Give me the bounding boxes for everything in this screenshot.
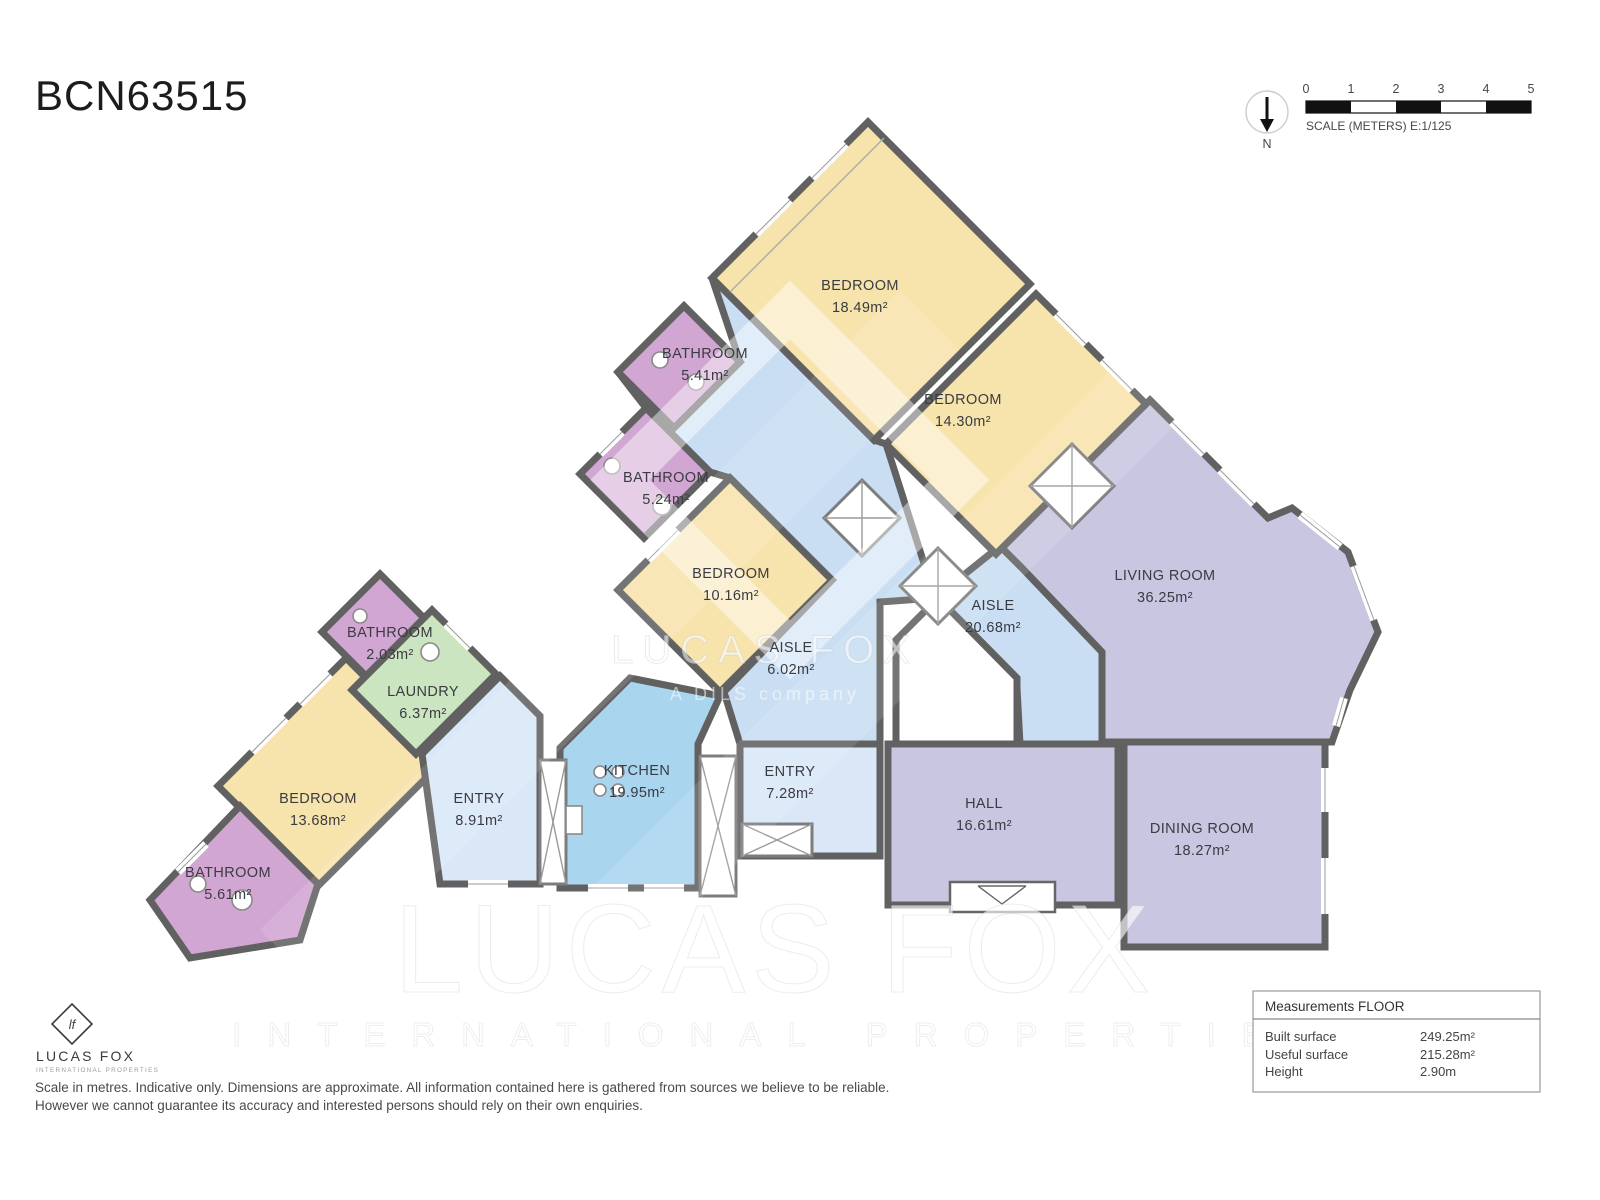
scale-segment bbox=[1396, 101, 1441, 113]
measurements-panel: Measurements FLOOR Built surface 249.25m… bbox=[1253, 991, 1540, 1092]
hob-icon bbox=[594, 784, 606, 796]
logo-name: LUCAS FOX bbox=[36, 1048, 135, 1064]
lucas-fox-logo: lf LUCAS FOX INTERNATIONAL PROPERTIES bbox=[36, 1004, 159, 1074]
north-compass: N bbox=[1246, 91, 1288, 151]
measurement-value: 215.28m² bbox=[1420, 1047, 1476, 1062]
scale-tick: 2 bbox=[1393, 82, 1400, 96]
measurement-label: Height bbox=[1265, 1064, 1303, 1079]
room-label: DINING ROOM bbox=[1150, 821, 1254, 837]
measurement-label: Useful surface bbox=[1265, 1047, 1348, 1062]
room-label: ENTRY bbox=[765, 764, 816, 780]
room-label: BATHROOM bbox=[347, 625, 433, 641]
disclaimer-line-2: However we cannot guarantee its accuracy… bbox=[35, 1098, 643, 1113]
logo-monogram: lf bbox=[69, 1017, 77, 1032]
scale-tick: 3 bbox=[1438, 82, 1445, 96]
room-area: 36.25m² bbox=[1137, 590, 1193, 606]
room-area: 5.61m² bbox=[204, 887, 252, 903]
room-label: HALL bbox=[965, 796, 1003, 812]
scale-tick: 0 bbox=[1303, 82, 1310, 96]
room-area: 5.24m² bbox=[642, 492, 690, 508]
room-area: 6.37m² bbox=[399, 706, 447, 722]
scale-tick: 1 bbox=[1348, 82, 1355, 96]
disclaimer-line-1: Scale in metres. Indicative only. Dimens… bbox=[35, 1080, 889, 1095]
room-label: AISLE bbox=[971, 598, 1014, 614]
watermark-center-sub: A DILS company bbox=[670, 684, 860, 704]
room-label: BEDROOM bbox=[821, 278, 899, 294]
room-area: 6.02m² bbox=[767, 662, 815, 678]
room-area: 16.61m² bbox=[956, 818, 1012, 834]
room-area: 13.68m² bbox=[290, 813, 346, 829]
room-area: 18.49m² bbox=[832, 300, 888, 316]
measurement-value: 2.90m bbox=[1420, 1064, 1456, 1079]
kitchen-sink-icon bbox=[566, 806, 582, 834]
floorplan-canvas: LUCAS FOX A DILS company LUCAS FOX INTER… bbox=[0, 0, 1600, 1200]
room-label: BEDROOM bbox=[279, 791, 357, 807]
scale-segment bbox=[1486, 101, 1531, 113]
floorplan-page: LUCAS FOX A DILS company LUCAS FOX INTER… bbox=[0, 0, 1600, 1200]
room-label: LAUNDRY bbox=[387, 684, 459, 700]
room-label: ENTRY bbox=[454, 791, 505, 807]
room-label: BEDROOM bbox=[924, 392, 1002, 408]
sink-icon bbox=[353, 609, 367, 623]
room-label: BEDROOM bbox=[692, 566, 770, 582]
watermark-big-sub: INTERNATIONAL PROPERTIES bbox=[232, 1016, 1338, 1053]
north-label: N bbox=[1262, 137, 1271, 151]
scale-tick: 5 bbox=[1528, 82, 1535, 96]
room-area: 5.41m² bbox=[681, 368, 729, 384]
scale-bar: 0 1 2 3 4 5 SCALE (METERS) E:1/125 bbox=[1303, 82, 1535, 133]
room-area: 2.03m² bbox=[366, 647, 414, 663]
room-area: 10.16m² bbox=[703, 588, 759, 604]
washer-icon bbox=[421, 643, 439, 661]
scale-tick: 4 bbox=[1483, 82, 1490, 96]
watermark-big-title: LUCAS FOX bbox=[394, 880, 1157, 1019]
scale-segment bbox=[1306, 101, 1351, 113]
watermark-center-title: LUCAS FOX bbox=[611, 628, 919, 672]
room-label: BATHROOM bbox=[185, 865, 271, 881]
room-label: AISLE bbox=[769, 640, 812, 656]
measurements-title: Measurements FLOOR bbox=[1265, 999, 1405, 1014]
room-area: 18.27m² bbox=[1174, 843, 1230, 859]
room-label: BATHROOM bbox=[662, 346, 748, 362]
room-area: 20.68m² bbox=[965, 620, 1021, 636]
room-label: KITCHEN bbox=[604, 763, 670, 779]
room-label: LIVING ROOM bbox=[1114, 568, 1215, 584]
measurement-value: 249.25m² bbox=[1420, 1029, 1476, 1044]
room-area: 8.91m² bbox=[455, 813, 503, 829]
room-area: 14.30m² bbox=[935, 414, 991, 430]
north-arrowhead-icon bbox=[1260, 119, 1274, 132]
logo-tagline: INTERNATIONAL PROPERTIES bbox=[36, 1067, 159, 1074]
measurement-label: Built surface bbox=[1265, 1029, 1337, 1044]
room-area: 19.95m² bbox=[609, 785, 665, 801]
scale-caption: SCALE (METERS) E:1/125 bbox=[1306, 119, 1452, 133]
room-area: 7.28m² bbox=[766, 786, 814, 802]
page-title: BCN63515 bbox=[35, 72, 248, 119]
room-label: BATHROOM bbox=[623, 470, 709, 486]
